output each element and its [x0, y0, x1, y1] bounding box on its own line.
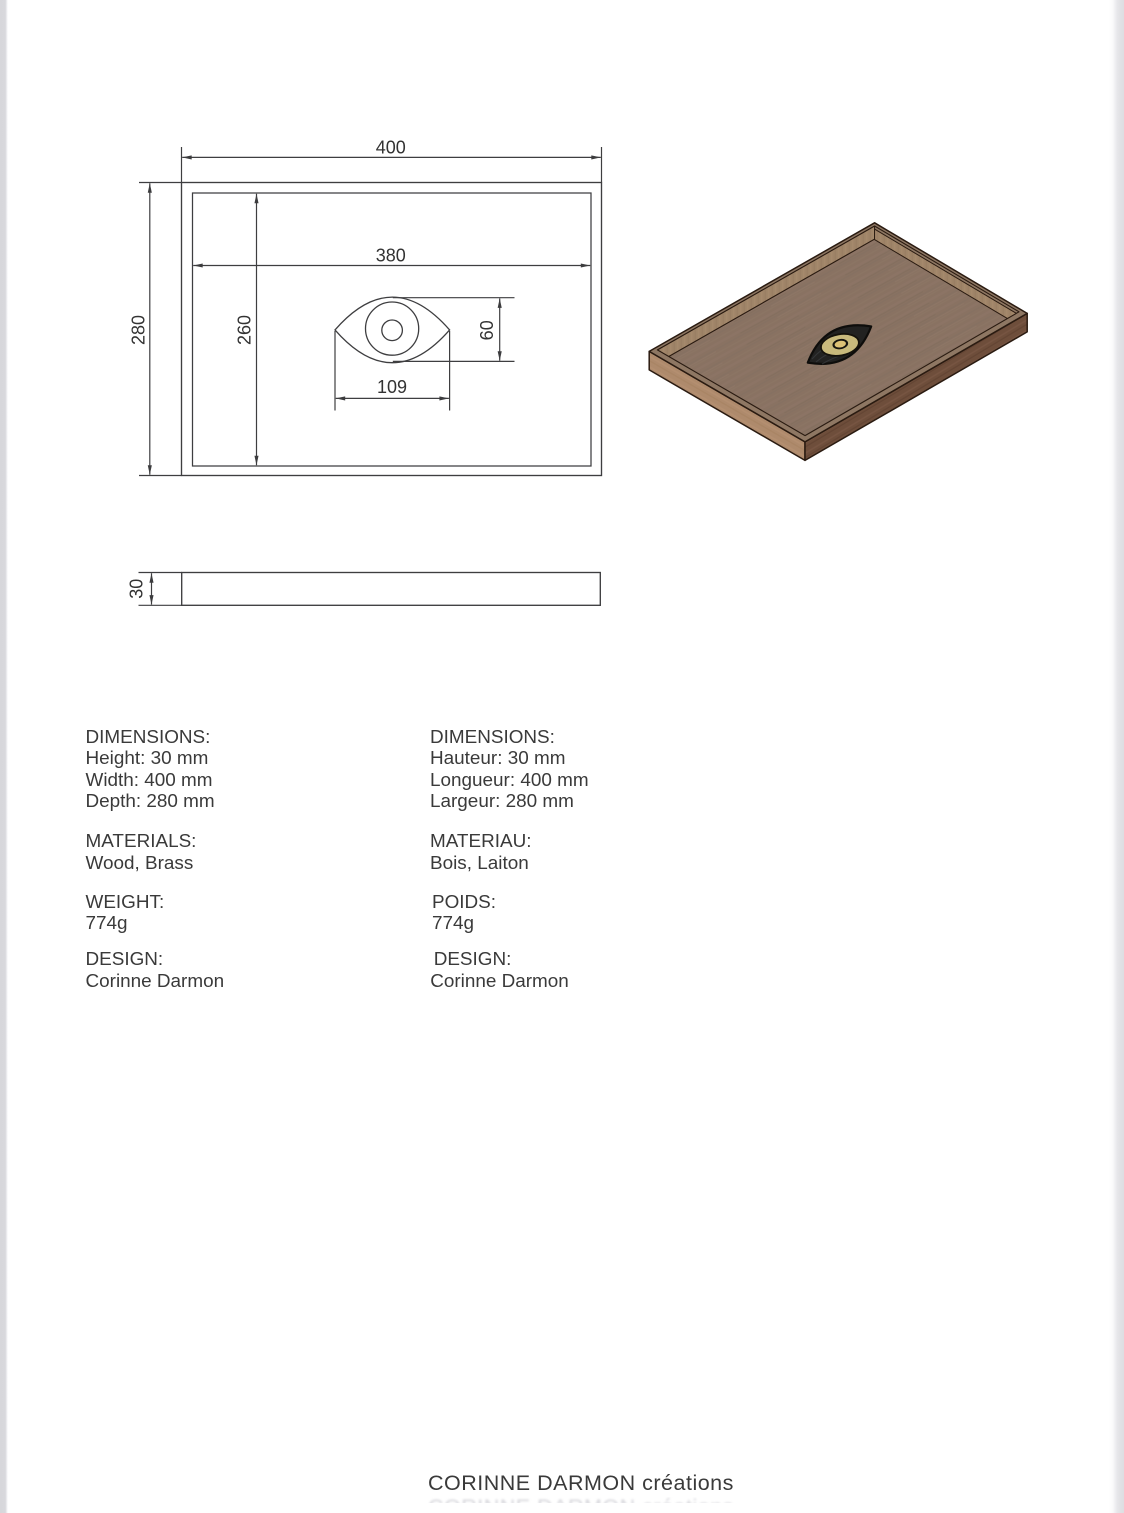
svg-text:380: 380 — [376, 246, 406, 266]
svg-text:400: 400 — [376, 137, 406, 157]
svg-text:280: 280 — [129, 315, 149, 345]
svg-text:60: 60 — [477, 320, 497, 340]
svg-text:30: 30 — [127, 579, 147, 599]
svg-text:260: 260 — [235, 315, 255, 345]
svg-text:109: 109 — [377, 377, 407, 397]
